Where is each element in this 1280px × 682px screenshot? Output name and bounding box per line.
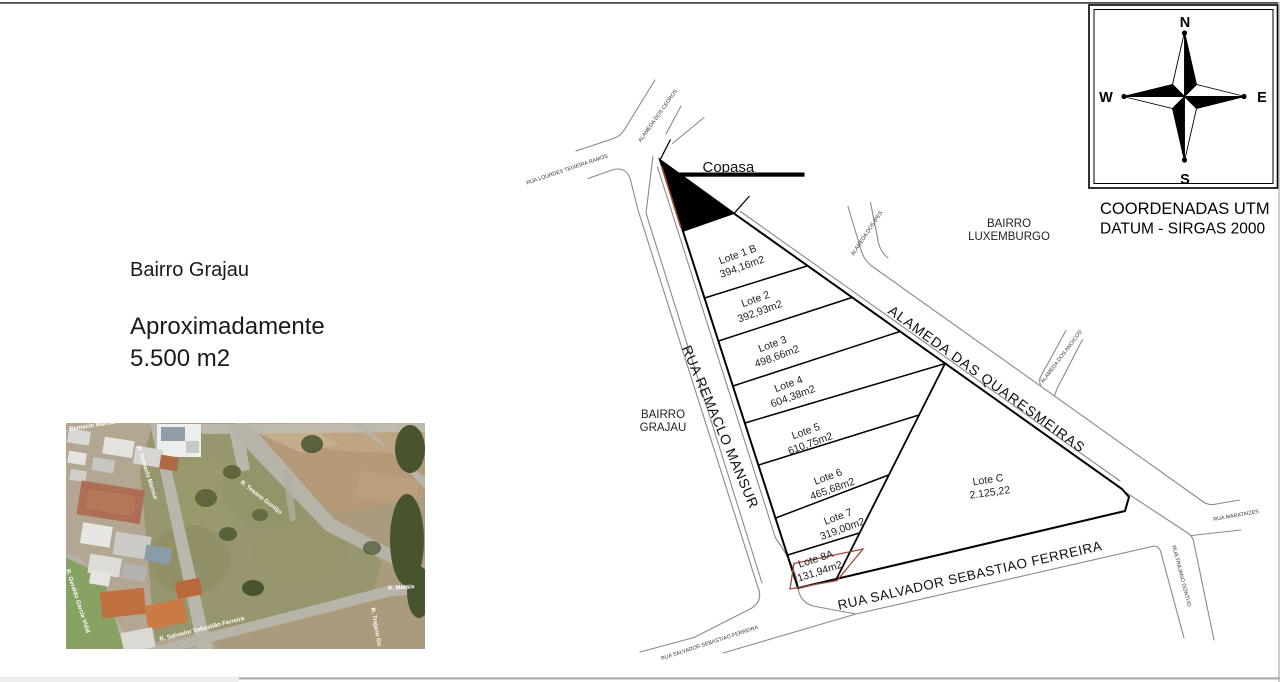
svg-text:ALAMEDA DOS CEDROS: ALAMEDA DOS CEDROS [638, 88, 680, 143]
svg-text:W: W [1099, 90, 1113, 106]
svg-text:RUA LOURDES TEIXEIRA RAMOS: RUA LOURDES TEIXEIRA RAMOS [526, 153, 609, 186]
svg-text:RUA REMACLO MANSUR: RUA REMACLO MANSUR [679, 343, 762, 511]
svg-text:ALAMEDA DOS IPES: ALAMEDA DOS IPES [850, 210, 885, 257]
svg-text:5.500 m2: 5.500 m2 [130, 345, 230, 372]
svg-text:Bairro Grajau: Bairro Grajau [130, 259, 249, 281]
svg-text:S: S [1180, 172, 1190, 188]
svg-text:LUXEMBURGO: LUXEMBURGO [968, 231, 1050, 243]
svg-text:BAIRRO: BAIRRO [987, 218, 1031, 230]
svg-text:E: E [1257, 90, 1267, 106]
svg-text:ALAMEDA DAS QUARESMEIRAS: ALAMEDA DAS QUARESMEIRAS [885, 302, 1088, 456]
svg-text:Copasa: Copasa [703, 159, 755, 176]
svg-text:GRAJAU: GRAJAU [640, 422, 687, 434]
svg-text:Aproximadamente: Aproximadamente [130, 313, 325, 340]
svg-text:COORDENADAS UTM: COORDENADAS UTM [1100, 200, 1270, 218]
svg-text:N: N [1180, 15, 1190, 31]
svg-text:BAIRRO: BAIRRO [641, 409, 685, 421]
svg-text:RUA SALVADOR SEBASTIAO FERREIR: RUA SALVADOR SEBASTIAO FERREIRA [660, 625, 759, 662]
svg-text:RUA SALVADOR SEBASTIAO FERREIR: RUA SALVADOR SEBASTIAO FERREIRA [836, 538, 1103, 613]
svg-text:DATUM - SIRGAS 2000: DATUM - SIRGAS 2000 [1100, 221, 1265, 238]
svg-text:RUA MARATAIZES: RUA MARATAIZES [1213, 509, 1260, 523]
